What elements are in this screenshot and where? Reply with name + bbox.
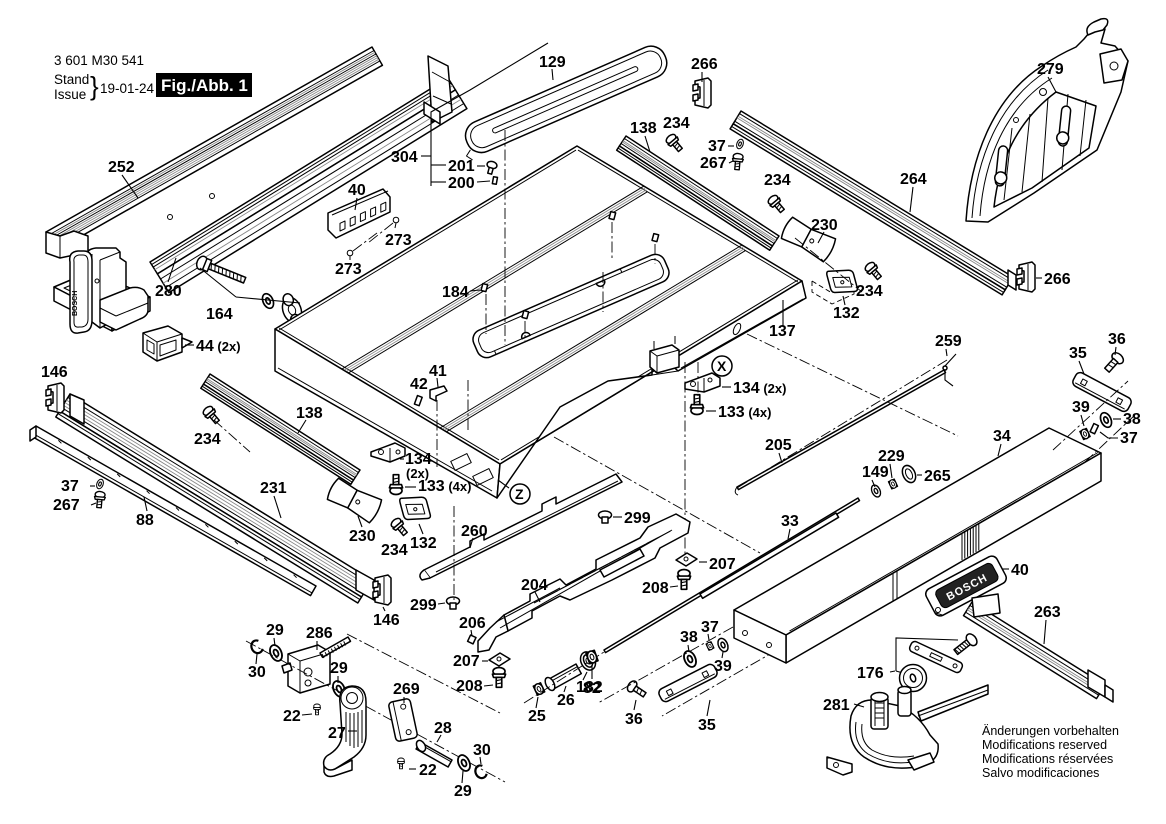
svg-text:208: 208 <box>642 580 669 597</box>
svg-text:234: 234 <box>381 542 408 559</box>
svg-text:176: 176 <box>857 665 884 682</box>
svg-text:234: 234 <box>194 431 221 448</box>
svg-text:37: 37 <box>701 619 719 636</box>
svg-text:38: 38 <box>680 629 698 646</box>
svg-text:299: 299 <box>410 597 437 614</box>
svg-text:Stand: Stand <box>54 72 89 87</box>
svg-text:164: 164 <box>206 306 233 323</box>
svg-text:230: 230 <box>811 217 838 234</box>
svg-text:204: 204 <box>521 577 548 594</box>
svg-text:264: 264 <box>900 171 927 188</box>
svg-text:30: 30 <box>473 742 491 759</box>
svg-text:252: 252 <box>108 159 135 176</box>
svg-text:29: 29 <box>266 622 284 639</box>
svg-text:207: 207 <box>709 556 736 573</box>
svg-text:Fig./Abb. 1: Fig./Abb. 1 <box>161 76 248 95</box>
svg-text:88: 88 <box>136 512 154 529</box>
svg-text:38: 38 <box>1123 411 1141 428</box>
svg-text:39: 39 <box>714 658 732 675</box>
svg-text:39: 39 <box>1072 399 1090 416</box>
svg-text:34: 34 <box>993 428 1011 445</box>
svg-text:29: 29 <box>454 783 472 800</box>
svg-text:265: 265 <box>924 468 951 485</box>
svg-text:146: 146 <box>41 364 68 381</box>
svg-text:36: 36 <box>625 711 643 728</box>
svg-text:37: 37 <box>61 478 79 495</box>
svg-text:231: 231 <box>260 480 287 497</box>
svg-text:Modifications reserved: Modifications reserved <box>982 738 1107 752</box>
svg-text:205: 205 <box>765 437 792 454</box>
svg-text:Z: Z <box>515 486 524 502</box>
svg-text:36: 36 <box>1108 331 1126 348</box>
svg-text:263: 263 <box>1034 604 1061 621</box>
svg-text:137: 137 <box>769 323 796 340</box>
svg-text:259: 259 <box>935 333 962 350</box>
svg-text:234: 234 <box>856 283 883 300</box>
svg-text:206: 206 <box>459 615 486 632</box>
svg-text:133 (4x): 133 (4x) <box>718 404 771 421</box>
svg-text:40: 40 <box>1011 562 1029 579</box>
svg-text:273: 273 <box>385 232 412 249</box>
svg-text:35: 35 <box>698 717 716 734</box>
svg-text:266: 266 <box>691 56 718 73</box>
svg-text:Issue: Issue <box>54 87 86 102</box>
svg-text:BOSCH: BOSCH <box>72 291 79 316</box>
svg-text:82: 82 <box>583 680 601 697</box>
svg-text:41: 41 <box>429 363 447 380</box>
svg-text:229: 229 <box>878 448 905 465</box>
svg-text:22: 22 <box>283 708 301 725</box>
svg-text:Modifications réservées: Modifications réservées <box>982 752 1113 766</box>
svg-text:Änderungen vorbehalten: Änderungen vorbehalten <box>982 724 1119 738</box>
svg-text:30: 30 <box>248 664 266 681</box>
svg-text:3 601 M30 541: 3 601 M30 541 <box>54 53 144 68</box>
svg-text:37: 37 <box>708 138 726 155</box>
svg-text:129: 129 <box>539 54 566 71</box>
svg-text:280: 280 <box>155 283 182 300</box>
svg-text:132: 132 <box>833 305 860 322</box>
svg-text:269: 269 <box>393 681 420 698</box>
svg-text:44 (2x): 44 (2x) <box>196 338 241 355</box>
svg-text:260: 260 <box>461 523 488 540</box>
svg-text:33: 33 <box>781 513 799 530</box>
svg-text:299: 299 <box>624 510 651 527</box>
svg-text:28: 28 <box>434 720 452 737</box>
svg-text:267: 267 <box>700 155 727 172</box>
svg-text:138: 138 <box>296 405 323 422</box>
svg-text:281: 281 <box>823 697 850 714</box>
svg-text:279: 279 <box>1037 61 1064 78</box>
svg-text:230: 230 <box>349 528 376 545</box>
svg-text:267: 267 <box>53 497 80 514</box>
svg-text:201: 201 <box>448 158 475 175</box>
svg-text:234: 234 <box>663 115 690 132</box>
svg-text:286: 286 <box>306 625 333 642</box>
svg-text:42: 42 <box>410 376 428 393</box>
svg-text:207: 207 <box>453 653 480 670</box>
svg-text:25: 25 <box>528 708 546 725</box>
svg-text:22: 22 <box>419 762 437 779</box>
svg-text:29: 29 <box>330 660 348 677</box>
svg-text:X: X <box>717 358 727 374</box>
svg-text:35: 35 <box>1069 345 1087 362</box>
svg-text:}: } <box>90 71 99 101</box>
svg-text:27: 27 <box>328 725 346 742</box>
svg-text:273: 273 <box>335 261 362 278</box>
svg-text:40: 40 <box>348 182 366 199</box>
svg-text:304: 304 <box>391 149 418 166</box>
svg-text:138: 138 <box>630 120 657 137</box>
svg-text:266: 266 <box>1044 271 1071 288</box>
svg-text:234: 234 <box>764 172 791 189</box>
svg-text:26: 26 <box>557 692 575 709</box>
svg-text:37: 37 <box>1120 430 1138 447</box>
svg-text:146: 146 <box>373 612 400 629</box>
svg-text:200: 200 <box>448 175 475 192</box>
svg-text:134 (2x): 134 (2x) <box>733 380 786 397</box>
svg-text:149: 149 <box>862 464 889 481</box>
svg-text:132: 132 <box>410 535 437 552</box>
svg-text:Salvo modificaciones: Salvo modificaciones <box>982 766 1099 780</box>
svg-text:19-01-24: 19-01-24 <box>100 81 155 96</box>
svg-text:184: 184 <box>442 284 469 301</box>
svg-text:133 (4x): 133 (4x) <box>418 478 471 495</box>
